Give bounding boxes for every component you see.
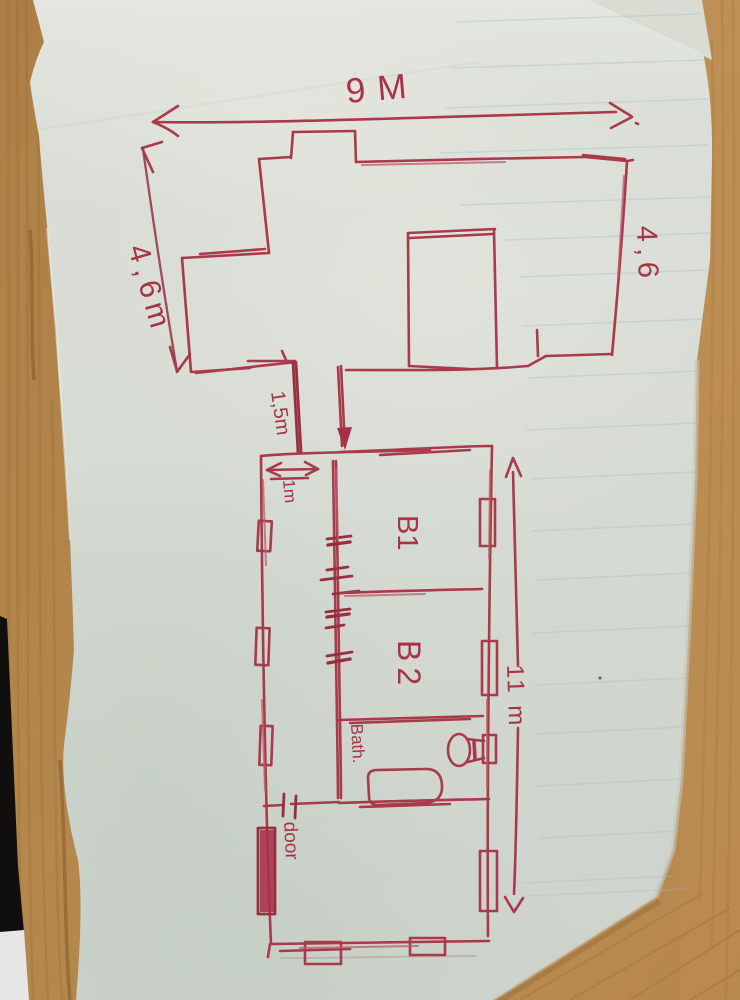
svg-text:1m: 1m: [279, 479, 300, 504]
svg-text:Bath.: Bath.: [347, 723, 368, 764]
svg-text:11 m: 11 m: [501, 664, 530, 728]
svg-text:B1: B1: [391, 515, 423, 550]
svg-text:B2: B2: [391, 640, 427, 691]
svg-text:4,6: 4,6: [630, 225, 664, 284]
svg-text:door: door: [279, 821, 302, 861]
svg-text:9M: 9M: [344, 66, 420, 111]
